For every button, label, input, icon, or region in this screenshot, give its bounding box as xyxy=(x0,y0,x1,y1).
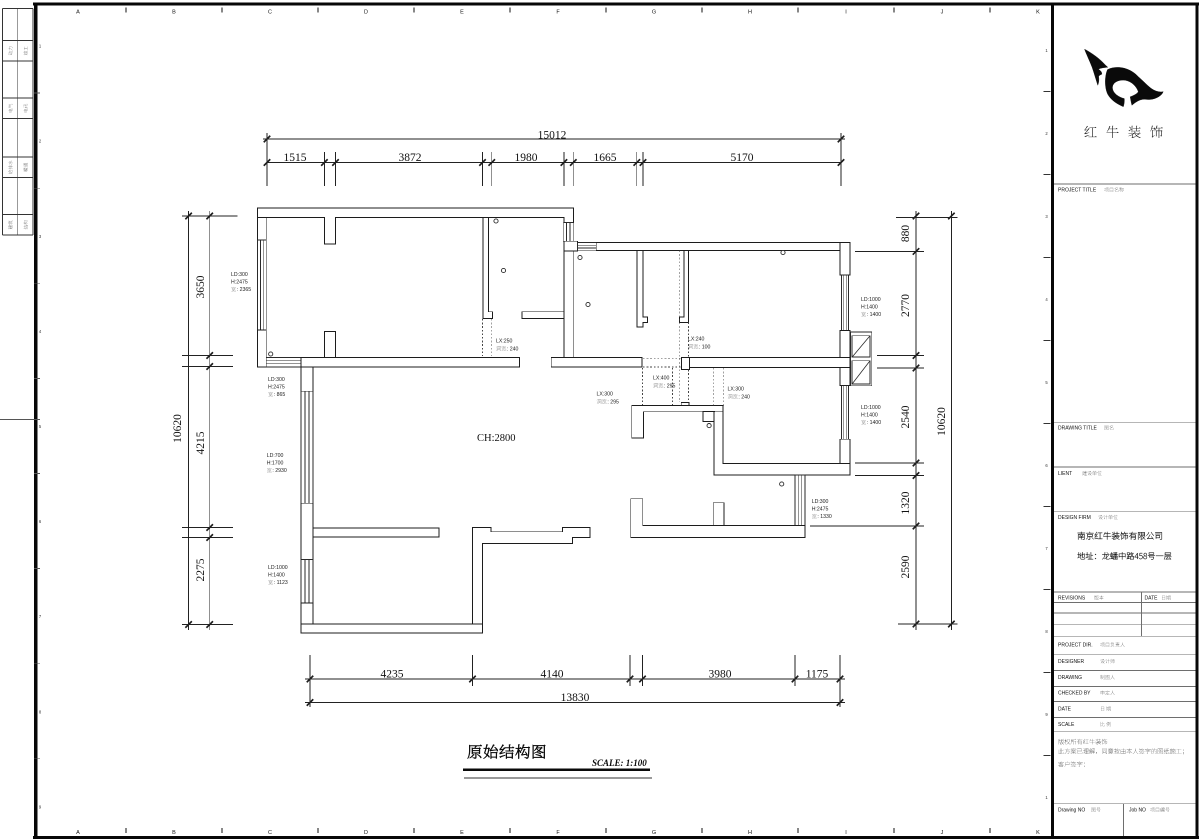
svg-text:LD:1000: LD:1000 xyxy=(861,405,881,411)
svg-text:C: C xyxy=(268,830,272,836)
svg-text:5170: 5170 xyxy=(731,152,754,164)
svg-text:2770: 2770 xyxy=(900,294,912,317)
svg-text:: 100: : 100 xyxy=(699,345,711,351)
svg-text:10620: 10620 xyxy=(172,414,184,443)
svg-text:B: B xyxy=(172,830,176,836)
svg-text:PROJECT TITLE: PROJECT TITLE xyxy=(1058,188,1097,194)
svg-text:G: G xyxy=(652,10,656,16)
svg-text:Job NO: Job NO xyxy=(1129,808,1146,814)
svg-text:K: K xyxy=(1036,830,1040,836)
svg-text:DESIGNER: DESIGNER xyxy=(1058,659,1085,665)
svg-text:LD:1000: LD:1000 xyxy=(861,297,881,303)
svg-text:1515: 1515 xyxy=(284,152,307,164)
svg-text:DATE: DATE xyxy=(1145,596,1159,602)
svg-text:D: D xyxy=(364,830,368,836)
svg-text:1665: 1665 xyxy=(594,152,617,164)
svg-text:: 1330: : 1330 xyxy=(817,514,832,520)
svg-text:4215: 4215 xyxy=(195,431,207,454)
svg-text:4235: 4235 xyxy=(381,669,404,681)
svg-text:15012: 15012 xyxy=(538,130,567,142)
svg-text:4140: 4140 xyxy=(541,669,564,681)
svg-text:E: E xyxy=(460,10,464,16)
svg-text:DRAWING TITLE: DRAWING TITLE xyxy=(1058,426,1098,432)
svg-text:CH:2800: CH:2800 xyxy=(477,433,516,444)
svg-text:1320: 1320 xyxy=(900,491,912,514)
svg-text:: 295: : 295 xyxy=(607,400,619,406)
svg-text:: 295: : 295 xyxy=(664,384,676,390)
svg-text:2590: 2590 xyxy=(900,555,912,578)
svg-text:LX:250: LX:250 xyxy=(496,339,513,345)
svg-text:LD:300: LD:300 xyxy=(231,272,248,278)
svg-text:PROJECT DIR.: PROJECT DIR. xyxy=(1058,643,1093,649)
svg-text:2540: 2540 xyxy=(900,405,912,428)
svg-text:10620: 10620 xyxy=(936,407,948,436)
svg-text:LD:300: LD:300 xyxy=(812,499,829,505)
svg-text:3872: 3872 xyxy=(399,152,422,164)
svg-text:3980: 3980 xyxy=(709,669,732,681)
svg-text:H: H xyxy=(748,10,752,16)
svg-text:LD:1000: LD:1000 xyxy=(268,565,288,571)
svg-text:LD:300: LD:300 xyxy=(268,377,285,383)
svg-text:3650: 3650 xyxy=(195,275,207,298)
svg-text:DRAWING: DRAWING xyxy=(1058,675,1082,681)
svg-text:: 2930: : 2930 xyxy=(272,468,287,474)
svg-text:SCALE: 1:100: SCALE: 1:100 xyxy=(592,758,647,768)
svg-text:J: J xyxy=(941,10,944,16)
svg-text:LIENT: LIENT xyxy=(1058,471,1072,477)
svg-text:1175: 1175 xyxy=(806,669,829,681)
svg-text:CHECKED BY: CHECKED BY xyxy=(1058,691,1091,697)
svg-text:: 240: : 240 xyxy=(738,395,750,401)
svg-text:C: C xyxy=(268,10,272,16)
svg-text:DESIGN FIRM: DESIGN FIRM xyxy=(1058,515,1091,521)
svg-text:13830: 13830 xyxy=(561,692,590,704)
svg-text:E: E xyxy=(460,830,464,836)
svg-text:G: G xyxy=(652,830,656,836)
svg-text:B: B xyxy=(172,10,176,16)
svg-text:: 865: : 865 xyxy=(274,392,286,398)
svg-text:A: A xyxy=(76,10,80,16)
svg-text:H:1400: H:1400 xyxy=(861,413,878,419)
svg-text:: 2365: : 2365 xyxy=(237,287,252,293)
svg-text:Drawing NO: Drawing NO xyxy=(1058,808,1085,814)
svg-text:LX:400: LX:400 xyxy=(653,376,670,382)
svg-text:1980: 1980 xyxy=(515,152,538,164)
svg-text:H:1400: H:1400 xyxy=(861,305,878,311)
svg-text:: 1400: : 1400 xyxy=(867,312,882,318)
svg-text:H:1700: H:1700 xyxy=(267,461,284,467)
svg-text:LX:300: LX:300 xyxy=(597,392,614,398)
svg-text:D: D xyxy=(364,10,368,16)
svg-text:H:1400: H:1400 xyxy=(268,573,285,579)
svg-text:LX:240: LX:240 xyxy=(688,337,705,343)
svg-text:LD:700: LD:700 xyxy=(267,453,284,459)
svg-text:K: K xyxy=(1036,10,1040,16)
svg-text:H:2475: H:2475 xyxy=(812,507,829,513)
svg-text:880: 880 xyxy=(900,225,912,243)
svg-text:: 1123: : 1123 xyxy=(274,580,288,586)
svg-text:A: A xyxy=(76,830,80,836)
svg-text:LX:300: LX:300 xyxy=(728,387,745,393)
svg-text:SCALE: SCALE xyxy=(1058,722,1075,728)
svg-text:REVISIONS: REVISIONS xyxy=(1058,596,1086,602)
svg-text:J: J xyxy=(941,830,944,836)
svg-text:H:2475: H:2475 xyxy=(231,280,248,286)
svg-text:H: H xyxy=(748,830,752,836)
svg-text:H:2475: H:2475 xyxy=(268,385,285,391)
svg-text:2275: 2275 xyxy=(195,558,207,581)
svg-text:DATE: DATE xyxy=(1058,707,1072,713)
svg-text:: 240: : 240 xyxy=(507,347,519,353)
svg-text:: 1400: : 1400 xyxy=(867,420,882,426)
